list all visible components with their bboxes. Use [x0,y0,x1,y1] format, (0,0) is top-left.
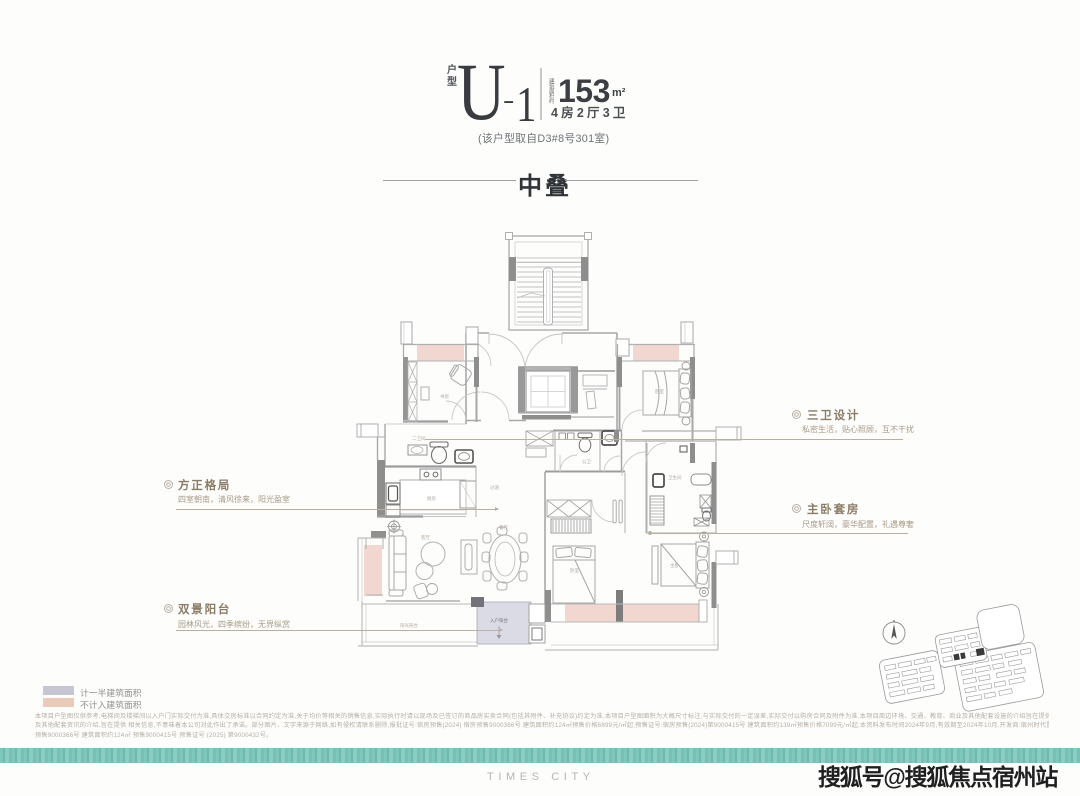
svg-text:主卧: 主卧 [670,562,679,569]
svg-text:餐厅: 餐厅 [499,524,508,531]
svg-text:客厅: 客厅 [421,534,430,541]
svg-text:二卫间: 二卫间 [412,435,426,442]
svg-text:公卫: 公卫 [582,459,591,464]
svg-text:卧室: 卧室 [655,388,664,395]
svg-text:入户阳台: 入户阳台 [490,617,508,624]
svg-text:卧室: 卧室 [570,567,579,574]
svg-text:书房: 书房 [440,393,449,400]
svg-text:卫生间: 卫生间 [668,474,682,481]
svg-text:过道: 过道 [490,484,499,491]
